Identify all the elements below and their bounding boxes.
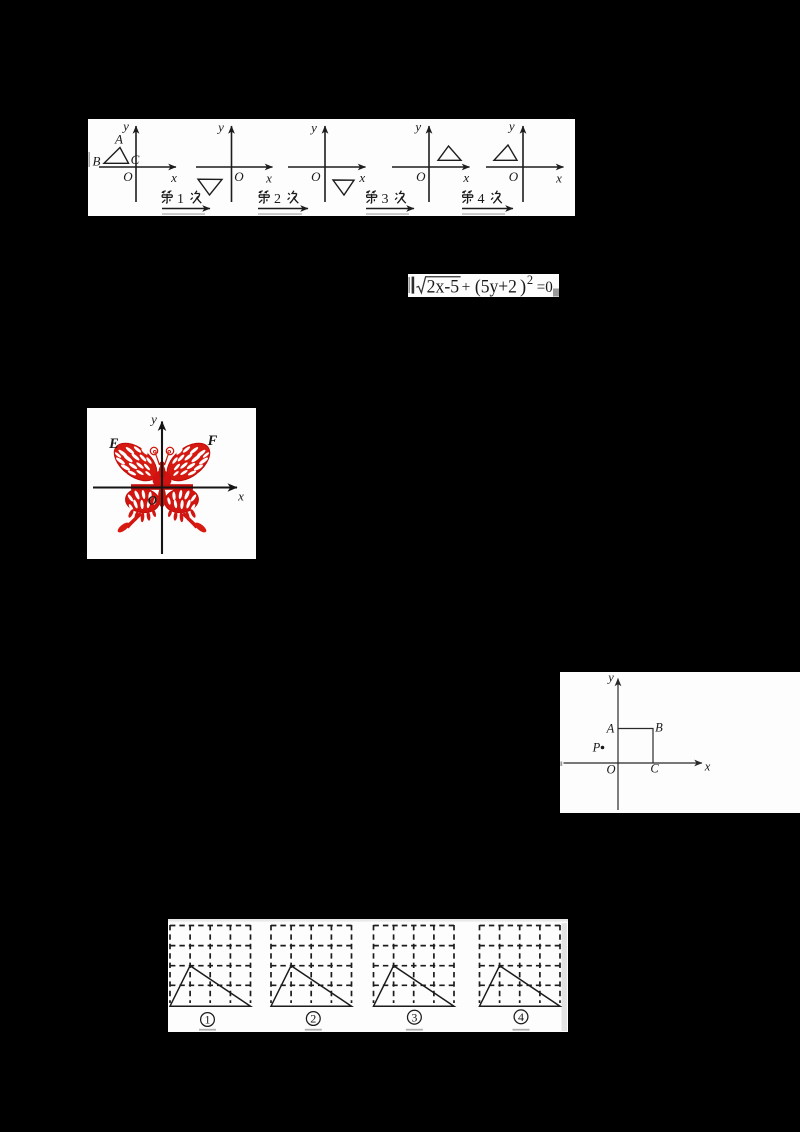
svg-text:y: y	[309, 120, 317, 135]
svg-text:x: x	[237, 489, 244, 504]
svg-text:x: x	[170, 170, 177, 185]
svg-text:F: F	[207, 433, 218, 449]
svg-text:x: x	[265, 171, 272, 186]
svg-text:y: y	[413, 119, 421, 134]
svg-text:y: y	[149, 412, 157, 427]
svg-text:(5y+2: (5y+2	[475, 278, 517, 297]
svg-text:B: B	[93, 154, 101, 169]
svg-text:P: P	[592, 741, 601, 755]
svg-text:A: A	[606, 722, 615, 736]
svg-text:A: A	[114, 132, 123, 147]
svg-text:O: O	[311, 169, 321, 184]
svg-text:=0: =0	[537, 279, 553, 296]
svg-text:O: O	[123, 169, 133, 184]
svg-text:x: x	[704, 760, 711, 774]
svg-text:2: 2	[274, 192, 281, 207]
svg-text:1: 1	[205, 1013, 211, 1027]
svg-text:): )	[520, 278, 526, 297]
svg-text:E: E	[108, 436, 119, 452]
svg-text:4: 4	[478, 192, 485, 207]
svg-text:3: 3	[411, 1010, 417, 1024]
svg-text:C: C	[650, 762, 659, 776]
svg-text:y: y	[606, 672, 614, 685]
svg-text:O: O	[606, 763, 615, 777]
svg-text:C: C	[131, 152, 140, 167]
svg-text:x: x	[462, 170, 469, 185]
svg-text:3: 3	[382, 192, 389, 207]
svg-text:+: +	[462, 279, 471, 296]
svg-text:x: x	[358, 170, 365, 185]
svg-text:B: B	[655, 721, 663, 735]
svg-text:O: O	[148, 493, 158, 508]
svg-text:2: 2	[527, 274, 533, 287]
svg-text:O: O	[234, 169, 244, 184]
svg-text:y: y	[507, 119, 515, 134]
svg-text:2x-5: 2x-5	[427, 278, 460, 297]
svg-text:y: y	[216, 119, 224, 134]
svg-text:x: x	[555, 171, 562, 186]
svg-text:1: 1	[177, 192, 184, 207]
svg-text:2: 2	[310, 1012, 316, 1026]
svg-text:O: O	[509, 169, 519, 184]
svg-text:O: O	[416, 169, 426, 184]
svg-text:4: 4	[518, 1010, 524, 1024]
